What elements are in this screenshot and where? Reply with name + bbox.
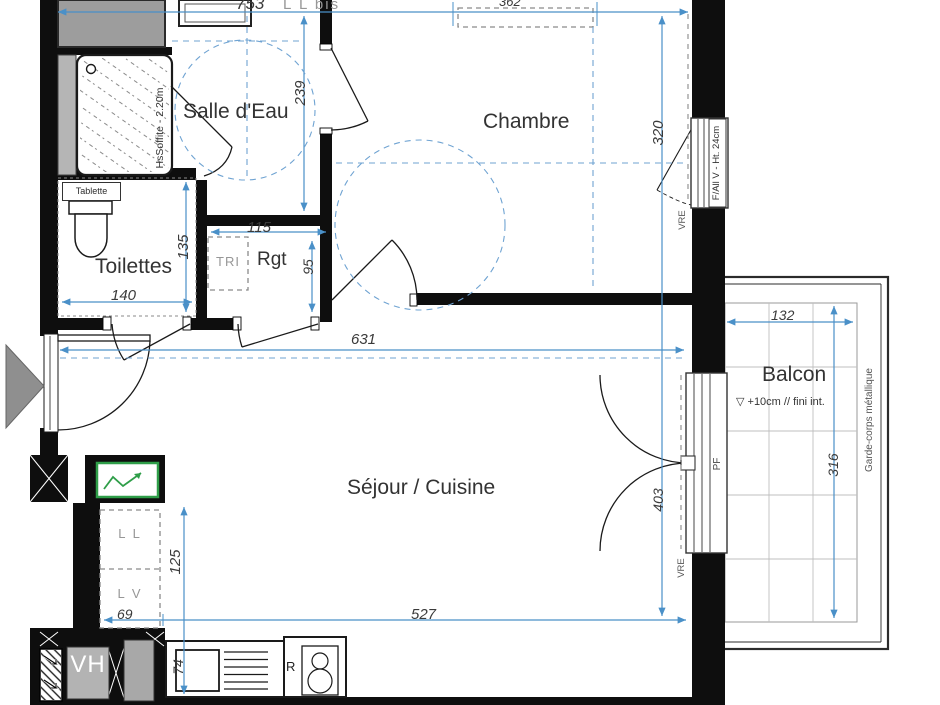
dim-320: 320 xyxy=(651,103,667,163)
floor-plan: 753 L L bis 362 Salle d'Eau HsSoffite - … xyxy=(0,0,940,705)
note-balcon-level: ▽ +10cm // fini int. xyxy=(736,395,825,408)
note-lave-linge: L L xyxy=(110,526,150,541)
dim-140: 140 xyxy=(111,287,136,304)
electrical-panel xyxy=(97,463,158,497)
note-tablette: Tablette xyxy=(62,182,121,201)
dim-69: 69 xyxy=(117,606,133,622)
note-pf: PF xyxy=(710,448,726,480)
note-vh: VH xyxy=(67,651,109,679)
note-window-f-all-v: F/All V - Ht. 24cm xyxy=(709,113,725,213)
vent-duct xyxy=(40,649,62,701)
dim-132: 132 xyxy=(771,307,794,323)
dim-362: 362 xyxy=(499,0,521,9)
note-vre-balcon: VRE xyxy=(674,552,690,584)
kitchen-counter xyxy=(166,637,346,697)
dim-135: 135 xyxy=(176,217,192,277)
toilet xyxy=(69,201,112,257)
entrance-arrow xyxy=(6,345,44,428)
note-tri: TRI xyxy=(209,254,247,269)
dim-403: 403 xyxy=(650,470,666,530)
dim-95: 95 xyxy=(300,237,316,297)
note-garde-corps: Garde-corps métallique xyxy=(862,340,878,500)
room-label-salle-deau: Salle d'Eau xyxy=(183,100,289,124)
dim-753: 753 xyxy=(236,0,264,14)
note-cooktop-r: R xyxy=(286,659,295,674)
dim-125: 125 xyxy=(168,532,184,592)
note-lave-vaisselle: L V xyxy=(110,586,150,601)
room-label-sejour-cuisine: Séjour / Cuisine xyxy=(347,476,495,500)
room-label-toilettes: Toilettes xyxy=(95,255,172,279)
dim-316: 316 xyxy=(825,435,841,495)
dim-74: 74 xyxy=(170,637,186,697)
room-label-chambre: Chambre xyxy=(483,110,569,134)
room-label-balcon: Balcon xyxy=(762,363,826,387)
dim-115: 115 xyxy=(247,219,271,236)
dim-239: 239 xyxy=(293,63,309,123)
dim-527: 527 xyxy=(411,606,436,623)
note-hs-soffite: HsSoffite - 2.20m xyxy=(152,68,168,188)
room-label-rgt: Rgt xyxy=(257,249,287,271)
dimension-witness-lines xyxy=(163,2,597,626)
label-ll-bis: L L bis xyxy=(283,0,340,13)
dim-631: 631 xyxy=(351,331,376,348)
note-vre-chambre: VRE xyxy=(675,204,691,236)
